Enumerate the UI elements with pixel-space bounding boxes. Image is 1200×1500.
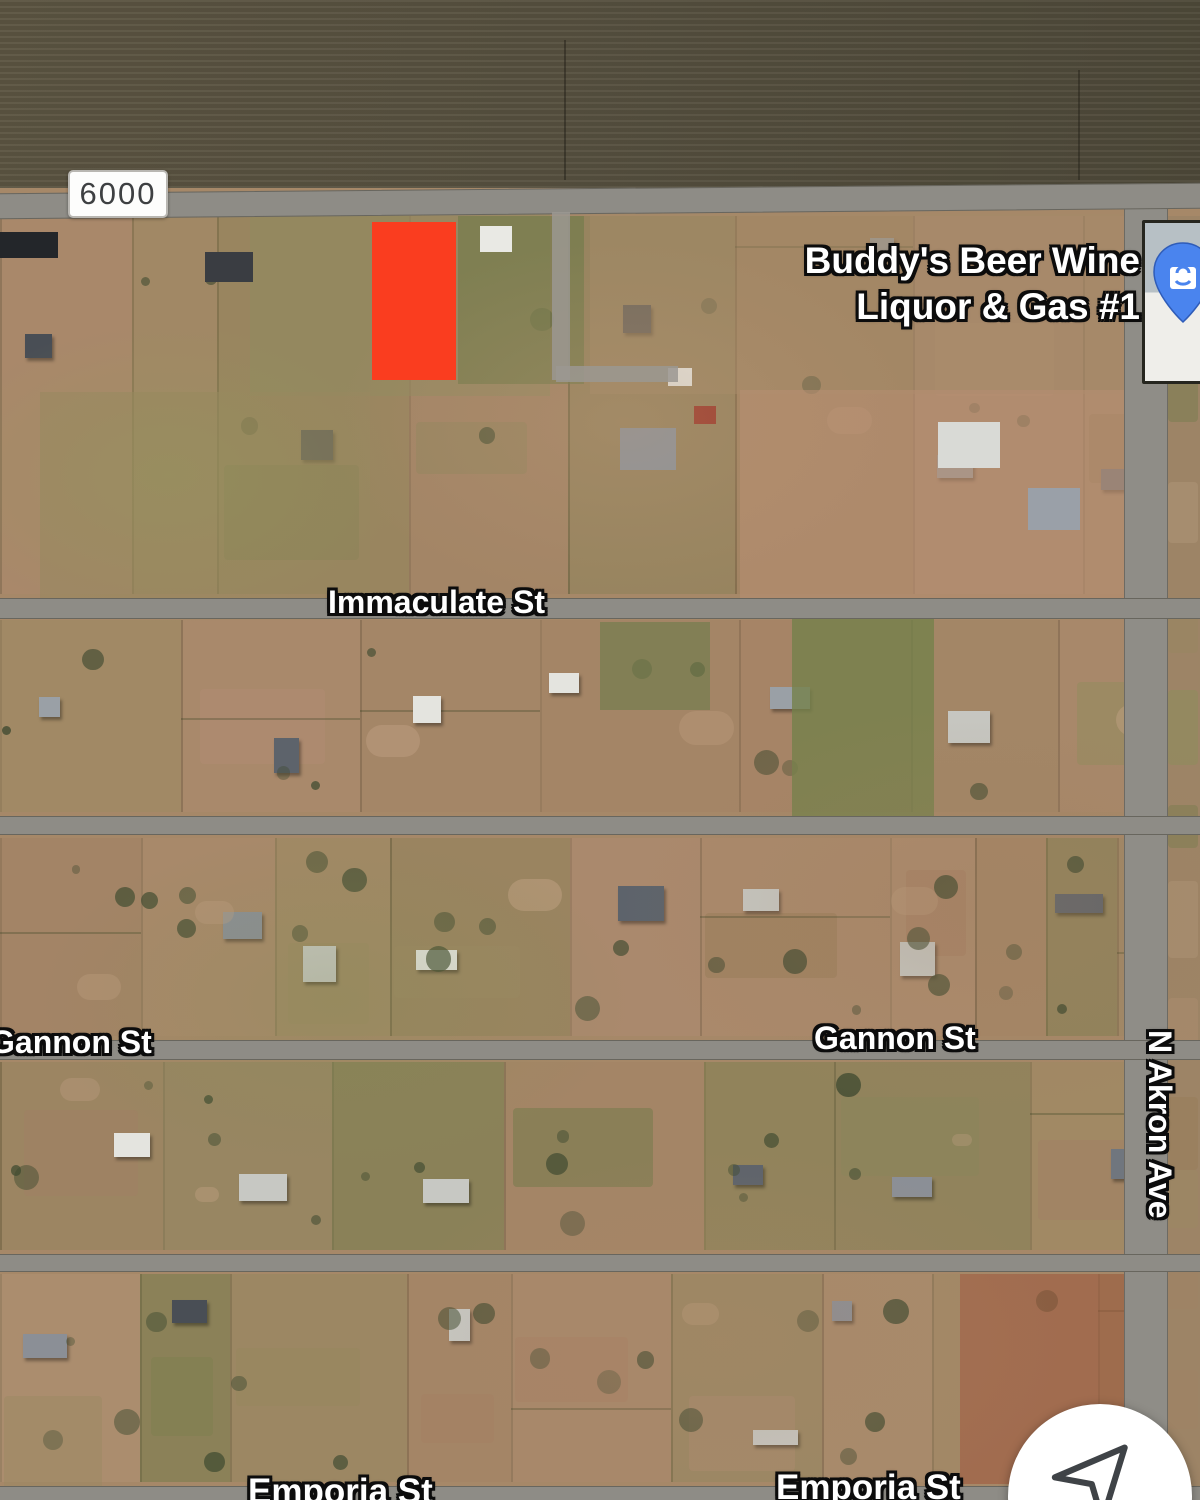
terrain-patch	[0, 932, 141, 934]
terrain-patch	[179, 887, 196, 904]
satellite-map[interactable]: Buddy's Beer Wine Liquor & Gas #1 6000 I…	[0, 0, 1200, 1500]
terrain-patch	[366, 725, 420, 757]
road-minor-spur	[552, 212, 570, 380]
terrain-patch	[292, 925, 308, 941]
terrain-patch	[479, 918, 496, 935]
street-label-emporia-left: Emporia St	[248, 1472, 433, 1500]
terrain-patch	[333, 1455, 348, 1470]
terrain-patch	[208, 1133, 221, 1146]
terrain-patch	[181, 718, 359, 720]
navigation-arrow-icon	[1039, 1414, 1160, 1500]
terrain-patch	[852, 1005, 862, 1015]
terrain-patch	[163, 1062, 332, 1250]
terrain-patch	[306, 851, 328, 873]
terrain-patch	[1067, 856, 1084, 873]
terrain-patch	[72, 865, 81, 874]
building	[25, 334, 53, 358]
building	[23, 1334, 67, 1358]
building	[303, 946, 336, 981]
terrain-patch	[200, 689, 325, 764]
terrain-patch	[416, 422, 527, 474]
terrain-patch	[530, 1348, 550, 1368]
terrain-patch	[700, 916, 890, 918]
terrain-patch	[114, 1409, 140, 1435]
terrain-patch	[546, 1153, 568, 1175]
terrain-patch	[705, 913, 838, 978]
terrain-patch	[204, 1452, 224, 1472]
terrain-patch	[754, 750, 779, 775]
terrain-patch	[2, 726, 11, 735]
building	[743, 889, 779, 911]
terrain-patch	[82, 649, 104, 671]
terrain-patch	[783, 949, 807, 973]
terrain-patch	[434, 912, 454, 932]
terrain-patch	[883, 1299, 908, 1324]
road-n-akron-ave	[1124, 194, 1168, 1500]
terrain-patch	[204, 1095, 213, 1104]
terrain-patch	[600, 622, 710, 710]
terrain-patch	[311, 781, 319, 789]
road-unnamed-1	[0, 816, 1200, 835]
building	[618, 886, 664, 921]
building	[114, 1133, 150, 1157]
road-immaculate-st	[0, 598, 1200, 619]
terrain-patch	[66, 1337, 75, 1346]
terrain-patch	[438, 1307, 461, 1330]
terrain-patch	[151, 1357, 214, 1436]
terrain-patch	[708, 957, 725, 974]
terrain-patch	[694, 406, 716, 424]
plowed-field	[0, 0, 1200, 188]
terrain-patch	[704, 1062, 834, 1250]
terrain-patch	[1028, 488, 1080, 530]
terrain-patch	[952, 1134, 972, 1146]
terrain-patch	[840, 1448, 857, 1465]
terrain-patch	[792, 618, 934, 816]
terrain-patch	[473, 1303, 494, 1324]
poi-label[interactable]: Buddy's Beer Wine Liquor & Gas #1	[805, 238, 1140, 330]
terrain-patch	[43, 1430, 62, 1449]
terrain-patch	[146, 1312, 167, 1333]
terrain-patch	[0, 232, 58, 258]
terrain-patch	[1168, 1370, 1198, 1429]
terrain-patch	[891, 887, 939, 916]
terrain-patch	[560, 1211, 585, 1236]
terrain-patch	[564, 40, 566, 180]
terrain-patch	[311, 1215, 321, 1225]
terrain-patch	[836, 1073, 861, 1098]
street-label-immaculate: Immaculate St	[328, 584, 545, 621]
terrain-patch	[421, 1394, 494, 1443]
terrain-patch	[479, 427, 495, 443]
terrain-patch	[77, 974, 120, 1000]
terrain-patch	[407, 1274, 511, 1482]
building	[239, 1174, 287, 1202]
building	[413, 696, 441, 723]
terrain-patch	[426, 946, 452, 972]
terrain-patch	[60, 1078, 100, 1102]
highlighted-parcel[interactable]	[372, 222, 456, 380]
terrain-patch	[40, 392, 370, 598]
terrain-patch	[195, 901, 234, 924]
building	[832, 1301, 852, 1322]
building	[423, 1179, 468, 1203]
street-label-gannon-left: Gannon St	[0, 1024, 152, 1061]
building	[39, 697, 60, 716]
terrain-patch	[360, 710, 541, 712]
street-label-emporia-right: Emporia St	[776, 1468, 961, 1500]
building	[753, 1430, 797, 1445]
terrain-patch	[511, 1408, 672, 1410]
terrain-patch	[508, 879, 561, 911]
street-label-n-akron-ave: N Akron Ave	[1141, 1030, 1178, 1218]
terrain-patch	[360, 620, 541, 812]
road-minor-drive	[556, 366, 678, 382]
terrain-patch	[332, 1062, 505, 1250]
terrain-patch	[637, 1351, 655, 1369]
terrain-patch	[390, 838, 570, 1036]
terrain-patch	[975, 838, 1046, 1036]
terrain-patch	[682, 1303, 719, 1325]
terrain-patch	[277, 766, 291, 780]
terrain-patch	[938, 422, 1000, 468]
terrain-patch	[999, 986, 1013, 1000]
terrain-patch	[0, 838, 141, 1036]
road-gannon-st	[0, 1040, 1200, 1060]
terrain-patch	[934, 875, 958, 899]
terrain-patch	[797, 1310, 819, 1332]
terrain-patch	[513, 1108, 653, 1187]
terrain-patch	[1168, 690, 1198, 765]
terrain-patch	[361, 1172, 370, 1181]
building	[172, 1300, 207, 1323]
terrain-patch	[679, 1408, 703, 1432]
building	[1055, 894, 1103, 914]
terrain-patch	[394, 946, 520, 998]
shopping-bag-pin-icon[interactable]	[1150, 240, 1200, 333]
terrain-patch	[236, 1348, 360, 1406]
terrain-patch	[1168, 881, 1198, 958]
terrain-patch	[575, 996, 600, 1021]
terrain-patch	[1168, 482, 1198, 543]
terrain-patch	[865, 1412, 885, 1432]
building	[892, 1177, 932, 1197]
terrain-patch	[620, 428, 676, 470]
terrain-patch	[1006, 944, 1022, 960]
building	[549, 673, 578, 693]
poi-name-line2: Liquor & Gas #1	[805, 284, 1140, 330]
terrain-patch	[177, 919, 196, 938]
road-number-badge: 6000	[68, 170, 168, 218]
terrain-patch	[1078, 70, 1080, 180]
terrain-patch	[141, 277, 151, 287]
building	[948, 711, 990, 743]
terrain-patch	[205, 252, 253, 282]
road-unnamed-2	[0, 1254, 1200, 1272]
terrain-patch	[480, 226, 512, 252]
terrain-patch	[557, 1130, 570, 1143]
terrain-patch	[195, 1187, 219, 1202]
street-label-gannon-right: Gannon St	[814, 1020, 976, 1057]
terrain-patch	[1057, 1004, 1067, 1014]
terrain-patch	[141, 892, 158, 909]
poi-name-line1: Buddy's Beer Wine	[805, 238, 1140, 284]
terrain-patch	[679, 711, 735, 744]
terrain-patch	[342, 868, 367, 893]
